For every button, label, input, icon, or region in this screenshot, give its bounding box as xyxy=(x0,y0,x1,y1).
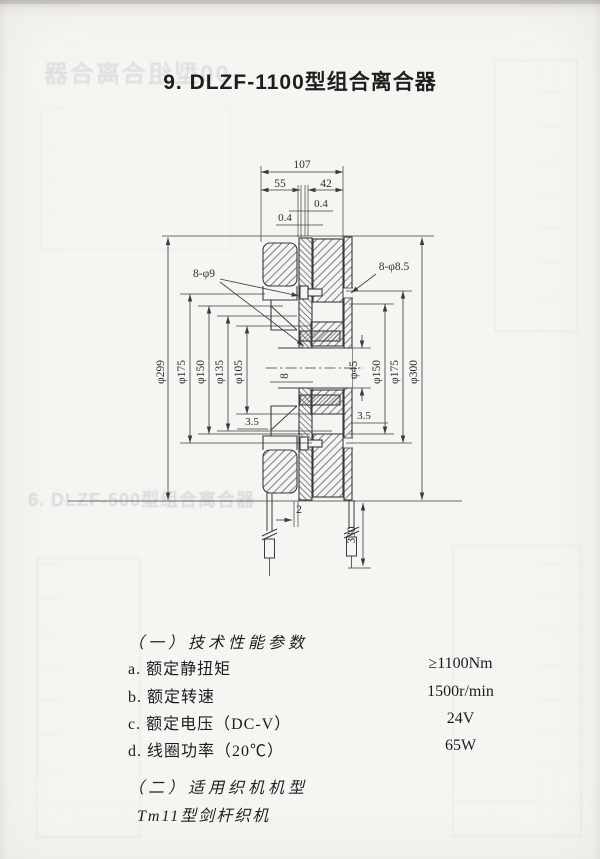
clutch-technical-drawing: 107 55 42 0.4 0.4 8-φ9 8-φ8.5 φ299 φ175 … xyxy=(0,0,600,859)
scanned-manual-page: 00型组合离合器 6. DLZF-500型组合离合器 9. DLZF-1100型… xyxy=(0,0,600,859)
spec-value-power: 65W xyxy=(388,737,533,755)
coil-bottom-left xyxy=(263,450,297,493)
dim-gap-a: 0.4 xyxy=(314,198,328,210)
dim-dia-150-left: φ150 xyxy=(195,360,207,384)
spec-label-voltage: c. 额定电压（DC-V） xyxy=(128,710,291,734)
spec-value-speed: 1500r/min xyxy=(388,683,533,701)
spec-value-torque: ≥1100Nm xyxy=(388,655,533,673)
dim-lead-330: 330 xyxy=(346,526,358,544)
dim-42: 42 xyxy=(320,178,332,190)
dim-dia-105: φ105 xyxy=(233,360,245,384)
dim-107: 107 xyxy=(293,159,311,171)
dim-holes-right: 8-φ8.5 xyxy=(379,261,410,273)
bolt-bottom xyxy=(300,437,308,450)
dim-keyway-8: 8 xyxy=(279,373,291,379)
dim-55: 55 xyxy=(274,178,286,190)
coil-top-left xyxy=(263,243,297,286)
spec-value-voltage: 24V xyxy=(388,710,533,728)
dim-step-right: 3.5 xyxy=(357,410,371,422)
dim-dia-175-right: φ175 xyxy=(389,360,401,384)
section-2-heading: （二）适用织机机型 xyxy=(128,774,308,798)
dim-holes-left: 8-φ9 xyxy=(193,268,215,280)
pin-bottom xyxy=(300,395,340,405)
pin-top xyxy=(300,331,340,341)
spec-label-power: d. 线圈功率（20℃） xyxy=(128,737,284,761)
dim-gap-b: 0.4 xyxy=(278,212,292,224)
dim-dia-299: φ299 xyxy=(155,360,167,384)
dim-gap-2: 2 xyxy=(296,504,302,516)
section-1-heading: （一）技术性能参数 xyxy=(128,629,308,653)
dim-step-left: 3.5 xyxy=(245,416,259,428)
dim-dia-300: φ300 xyxy=(408,360,420,384)
dim-dia-45: φ45 xyxy=(348,361,360,379)
bolt-top xyxy=(300,286,308,299)
dim-dia-150-right: φ150 xyxy=(371,360,383,384)
dim-dia-175-left: φ175 xyxy=(176,360,188,384)
spec-label-speed: b. 额定转速 xyxy=(128,683,215,707)
machine-type: Tm11型剑杆织机 xyxy=(137,802,270,826)
spec-label-torque: a. 额定静扭矩 xyxy=(128,655,231,679)
dim-dia-135: φ135 xyxy=(214,360,226,384)
